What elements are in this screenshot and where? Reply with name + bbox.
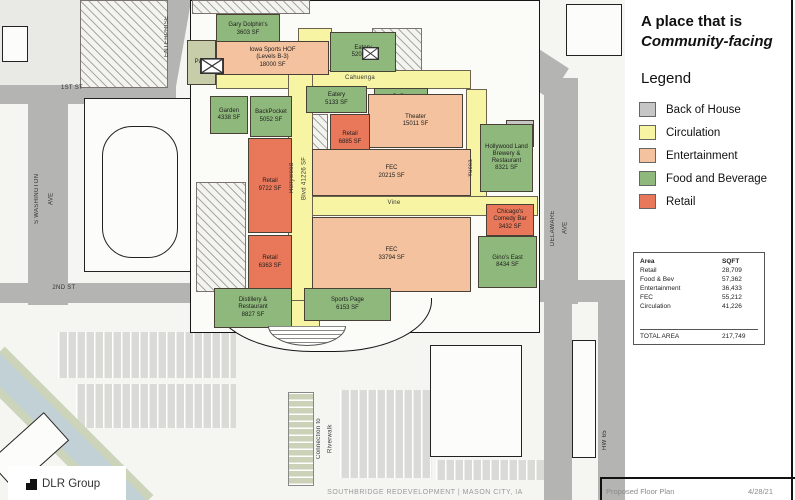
legend-swatch <box>639 194 656 209</box>
block-fec-20215: FEC 20215 SF <box>312 149 471 196</box>
block-sports-page: Sports Page 6153 SF <box>304 288 391 321</box>
area-table: Area SQFT Retail28,709Food & Bev57,362En… <box>633 252 765 345</box>
sqft-cell: 36,433 <box>722 284 758 293</box>
block-ginos-east: Gino's East 8434 SF <box>478 236 537 288</box>
parking-lot <box>340 390 432 478</box>
corridor-cahuenga: Cahuenga <box>322 73 398 85</box>
street-hw-65: HW 65 <box>601 416 619 464</box>
legend: Back of HouseCirculationEntertainmentFoo… <box>639 98 767 213</box>
block-chicagos-comedy-bar: Chicago's Comedy Bar 3432 SF <box>486 204 534 236</box>
title-line2: Community-facing <box>641 33 773 50</box>
area-cell: Circulation <box>640 302 722 311</box>
area-table-row: Entertainment36,433 <box>640 284 758 293</box>
connection-to-riverwalk: Connection to Riverwalk <box>314 398 340 480</box>
sqft-cell: 55,212 <box>722 293 758 302</box>
legend-swatch <box>639 148 656 163</box>
sqft-col-header: SQFT <box>722 257 758 266</box>
stairs-icon <box>362 47 379 60</box>
legend-item: Food and Beverage <box>639 167 767 190</box>
legend-item: Back of House <box>639 98 767 121</box>
hatched-existing-area <box>192 0 310 14</box>
block-fec-33794: FEC 33794 SF <box>312 217 471 292</box>
info-panel: A place that is Community-facing Legend … <box>625 0 795 500</box>
corridor-hollywood-blvd: Hollywood Blvd 41226 SF <box>286 140 314 216</box>
legend-item: Entertainment <box>639 144 767 167</box>
titleblock-tick <box>600 477 602 500</box>
legend-label: Retail <box>666 196 695 208</box>
street-delaware-ave: DELAWARE AVE <box>547 188 575 268</box>
riverwalk-boardwalk <box>288 392 314 486</box>
block-hollywood-land-brewery: Hollywood Land Brewery & Restaurant 8321… <box>480 124 533 192</box>
sheet-name: Proposed Floor Plan <box>606 487 674 496</box>
area-table-row: Retail28,709 <box>640 266 758 275</box>
sheet-date: 4/28/21 <box>748 487 773 496</box>
road <box>0 283 216 303</box>
building <box>430 345 522 457</box>
block-distillery-restaurant: Distillery & Restaurant 8827 SF <box>214 288 292 328</box>
area-col-header: Area <box>640 257 722 266</box>
hatched-existing-area <box>196 182 246 292</box>
area-table-total: TOTAL AREA 217,749 <box>640 329 758 340</box>
legend-item: Circulation <box>639 121 767 144</box>
dlr-group-logo: DLR Group <box>26 478 100 490</box>
legend-swatch <box>639 125 656 140</box>
street-2nd-st: 2ND ST <box>42 284 86 294</box>
area-cell: Entertainment <box>640 284 722 293</box>
legend-item: Retail <box>639 190 767 213</box>
sqft-cell: 41,226 <box>722 302 758 311</box>
legend-title: Legend <box>641 70 691 87</box>
dlr-logo-text: DLR Group <box>42 478 100 490</box>
block-backpocket: BackPocket 5052 SF <box>250 96 292 137</box>
area-cell: Food & Bev <box>640 275 722 284</box>
stairs-icon <box>200 58 224 74</box>
page-title: A place that is Community-facing <box>641 12 773 51</box>
building <box>572 340 596 458</box>
parking-lot <box>58 332 236 378</box>
area-table-row: Food & Bev57,362 <box>640 275 758 284</box>
area-table-row: FEC55,212 <box>640 293 758 302</box>
corridor-yucca: Yucca <box>467 148 485 188</box>
legend-label: Entertainment <box>666 150 738 162</box>
block-retail-6363: Retail 6363 SF <box>248 235 292 290</box>
building <box>2 26 28 62</box>
building <box>566 4 622 56</box>
block-iowa-sports-hof: Iowa Sports HOF (Levels B-3) 18000 SF <box>216 41 329 75</box>
sqft-cell: 28,709 <box>722 266 758 275</box>
hatched-existing-area <box>80 0 168 88</box>
legend-swatch <box>639 171 656 186</box>
area-table-rows: Retail28,709Food & Bev57,362Entertainmen… <box>640 266 758 311</box>
block-garden: Garden 4338 SF <box>210 96 248 134</box>
area-cell: Retail <box>640 266 722 275</box>
project-name: SOUTHBRIDGE REDEVELOPMENT | MASON CITY, … <box>290 489 560 496</box>
area-table-row: Circulation41,226 <box>640 302 758 311</box>
block-theater: Theater 15011 SF <box>368 94 463 148</box>
total-value: 217,749 <box>722 333 758 340</box>
legend-label: Back of House <box>666 104 741 116</box>
parking-lot <box>436 460 546 480</box>
arena-concourse-ring <box>102 126 178 258</box>
corridor-vine: Vine <box>374 198 414 210</box>
title-line1: A place that is <box>641 13 742 30</box>
legend-label: Food and Beverage <box>666 173 767 185</box>
street-1st-st: 1ST ST <box>50 84 94 94</box>
area-table-header: Area SQFT <box>640 257 758 266</box>
legend-label: Circulation <box>666 127 720 139</box>
area-cell: FEC <box>640 293 722 302</box>
total-label: TOTAL AREA <box>640 333 679 340</box>
street-s-washington-ave: S WASHINGTON AVE <box>30 156 62 242</box>
street-enterprise: ENTERPRISE <box>163 4 185 68</box>
dlr-logo-icon <box>26 479 37 490</box>
sheet-border <box>791 0 793 500</box>
road <box>598 302 625 500</box>
sqft-cell: 57,362 <box>722 275 758 284</box>
titleblock-line <box>600 477 795 479</box>
road <box>544 302 572 500</box>
legend-swatch <box>639 102 656 117</box>
floor-plan-sheet: Gary Dolphin's 3603 SFPatioIowa Sports H… <box>0 0 795 500</box>
block-eatery-5133: Eatery 5133 SF <box>306 86 367 113</box>
parking-lot <box>76 384 236 428</box>
